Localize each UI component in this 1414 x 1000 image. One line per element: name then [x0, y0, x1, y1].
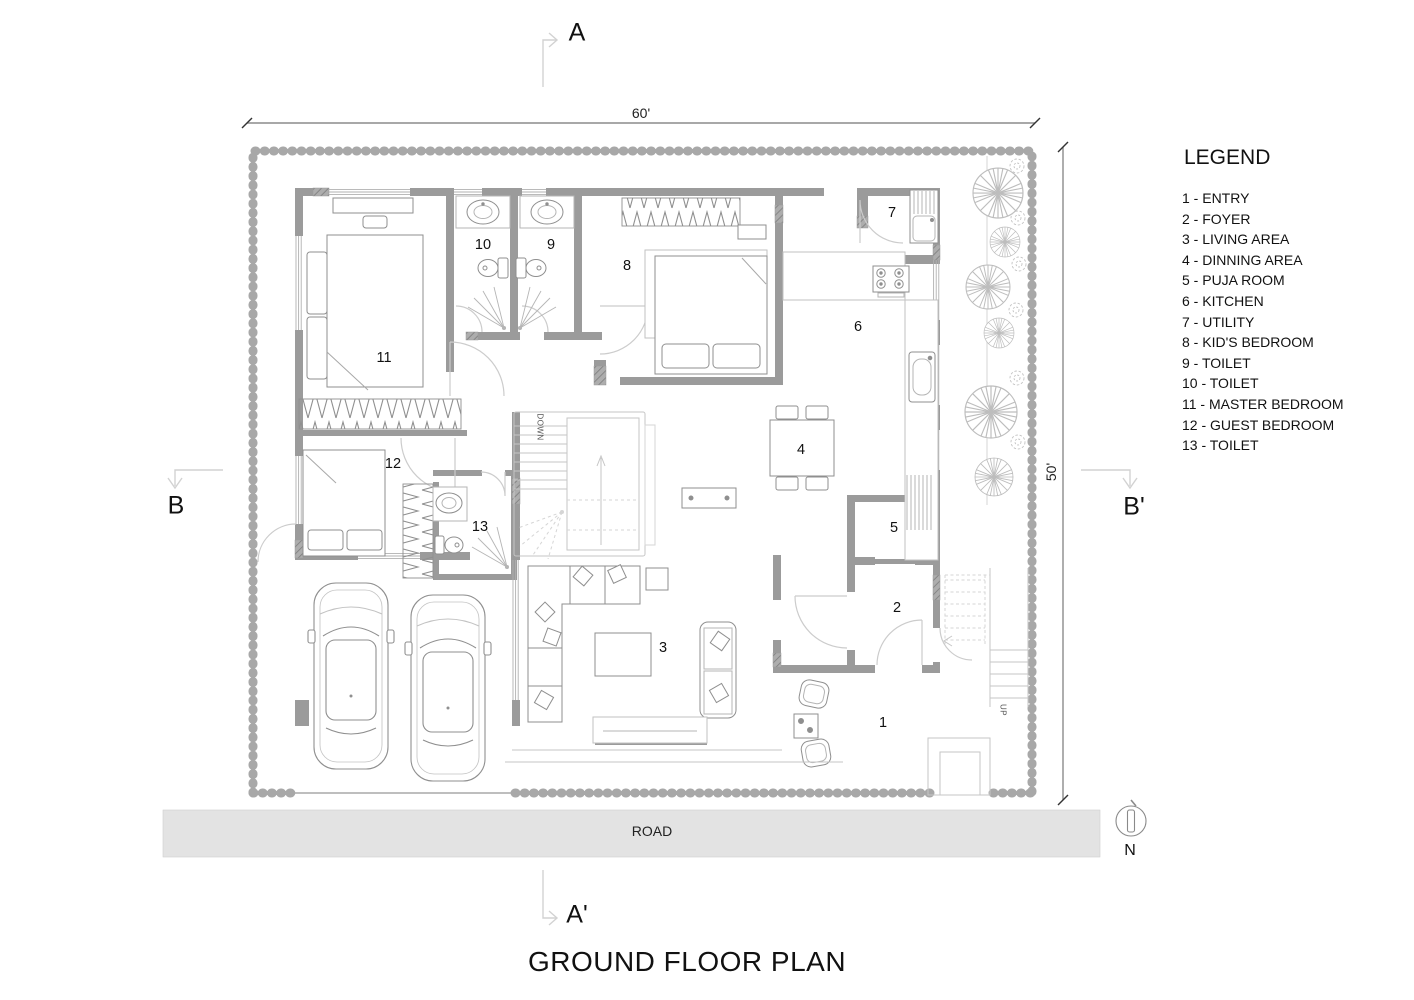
- porch-lines: [505, 738, 990, 795]
- living-furniture: [528, 565, 736, 743]
- room-label-toilet-10: 10: [475, 237, 491, 253]
- room-label-foyer: 2: [893, 600, 901, 616]
- room-label-dinning-area: 4: [797, 442, 805, 458]
- stair-up-label: UP: [999, 704, 1008, 716]
- room-label-entry: 1: [879, 715, 887, 731]
- room-label-toilet-9: 9: [547, 237, 555, 253]
- section-marker-a-prime: A': [566, 901, 587, 930]
- section-marker-b-prime: B': [1123, 493, 1144, 522]
- kitchen-fixtures: [783, 190, 938, 560]
- drawing-title: GROUND FLOOR PLAN: [528, 946, 846, 978]
- floor-plan-page: A A' B B' 60' 50' 1 2 3 4 5 6 7 8 9 10 1…: [0, 0, 1414, 1000]
- cars: [308, 583, 491, 781]
- garden-trees: [965, 159, 1026, 496]
- legend-heading: LEGEND: [1184, 146, 1402, 170]
- legend: LEGEND 1 - ENTRY 2 - FOYER 3 - LIVING AR…: [1182, 146, 1402, 456]
- entry-seating: [794, 678, 832, 768]
- room-label-kids-bedroom: 8: [623, 258, 631, 274]
- north-label: N: [1124, 842, 1136, 860]
- bed-guest: [303, 450, 385, 556]
- room-label-utility: 7: [888, 205, 896, 221]
- stair-down-label: DOWN: [536, 413, 545, 440]
- room-label-guest-bedroom: 12: [385, 456, 401, 472]
- legend-item-master-bedroom: 11 - MASTER BEDROOM: [1182, 394, 1402, 415]
- bed-master: [307, 198, 423, 390]
- room-label-living-area: 3: [659, 640, 667, 656]
- legend-item-living-area: 3 - LIVING AREA: [1182, 229, 1402, 250]
- legend-item-toilet-10: 10 - TOILET: [1182, 373, 1402, 394]
- legend-item-kitchen: 6 - KITCHEN: [1182, 291, 1402, 312]
- depth-dimension-label: 50': [1043, 463, 1059, 481]
- legend-item-entry: 1 - ENTRY: [1182, 188, 1402, 209]
- legend-item-toilet-13: 13 - TOILET: [1182, 435, 1402, 456]
- road-label: ROAD: [632, 823, 672, 839]
- legend-item-dinning-area: 4 - DINNING AREA: [1182, 250, 1402, 271]
- legend-item-guest-bedroom: 12 - GUEST BEDROOM: [1182, 415, 1402, 436]
- bed-kids: [645, 225, 767, 374]
- external-staircase: [944, 568, 1028, 707]
- room-label-toilet-13: 13: [472, 519, 488, 535]
- legend-item-utility: 7 - UTILITY: [1182, 312, 1402, 333]
- legend-item-foyer: 2 - FOYER: [1182, 209, 1402, 230]
- width-dimension-label: 60': [632, 105, 650, 121]
- dining-set: [682, 406, 834, 508]
- section-marker-b: B: [168, 492, 185, 521]
- room-label-puja-room: 5: [890, 520, 898, 536]
- legend-item-toilet-9: 9 - TOILET: [1182, 353, 1402, 374]
- legend-item-kids-bedroom: 8 - KID'S BEDROOM: [1182, 332, 1402, 353]
- legend-item-puja-room: 5 - PUJA ROOM: [1182, 270, 1402, 291]
- north-compass-icon: [1116, 800, 1146, 836]
- room-label-kitchen: 6: [854, 319, 862, 335]
- section-marker-a: A: [569, 19, 586, 48]
- room-label-master-bedroom: 11: [376, 350, 391, 366]
